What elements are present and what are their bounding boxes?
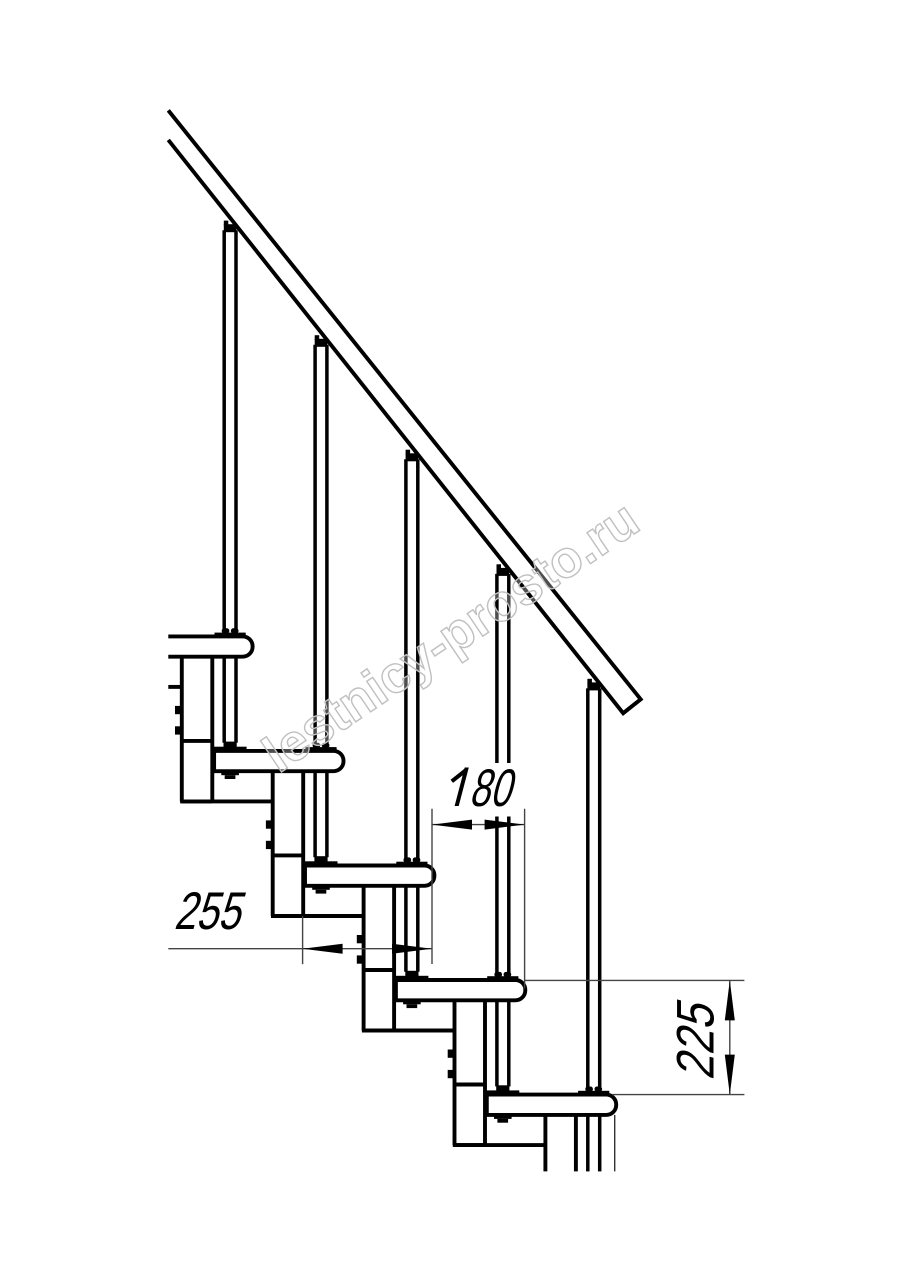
svg-text:225: 225 <box>666 993 725 1084</box>
svg-text:255: 255 <box>170 882 252 941</box>
